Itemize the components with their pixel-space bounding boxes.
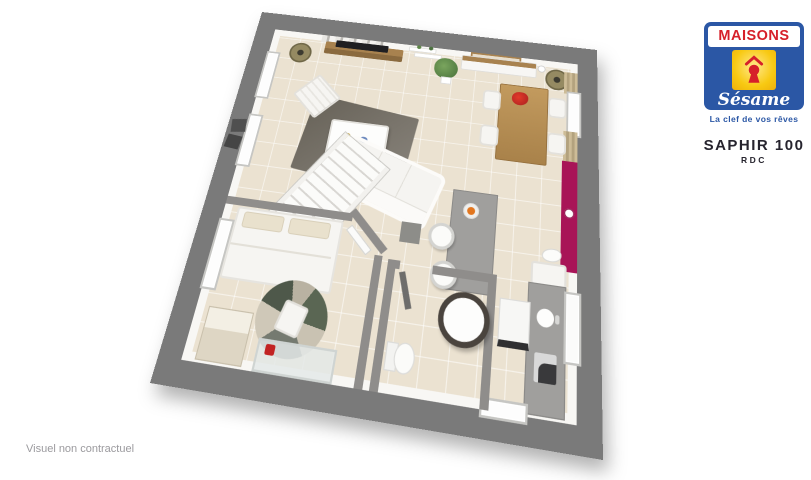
maisons-sesame-logo: MAISONS Sésame: [704, 22, 804, 110]
dining-chair: [548, 97, 567, 119]
keyhole-house-icon: [737, 53, 771, 87]
plan-level: RDC: [701, 155, 807, 165]
plant-pot: [440, 76, 451, 84]
logo-tagline: La clef de vos rêves: [701, 114, 807, 124]
floorplan-3d: [150, 12, 603, 460]
cooktop: [533, 352, 556, 385]
kitchen-faucet: [555, 315, 560, 325]
plan-title: SAPHIR 100: [701, 137, 807, 154]
logo-maisons-wordmark: MAISONS: [708, 26, 800, 47]
dining-chair: [547, 132, 566, 155]
entry-door: [563, 291, 581, 366]
brand-block: MAISONS Sésame La clef de vos rêves SAPH…: [701, 22, 807, 165]
disclaimer-text: Visuel non contractuel: [26, 443, 134, 455]
logo-yellow-square: [732, 50, 776, 90]
deco-vase: [538, 65, 546, 73]
hall-mat: [399, 221, 422, 244]
washing-machine: [497, 297, 531, 351]
dining-chair: [482, 89, 502, 111]
floorplan-shadow-wrap: [0, 0, 811, 480]
dining-chair: [479, 124, 499, 147]
open-shutter: [231, 119, 247, 132]
logo-sesame-wordmark: Sésame: [708, 91, 800, 109]
page-canvas: MAISONS Sésame La clef de vos rêves SAPH…: [0, 0, 811, 480]
